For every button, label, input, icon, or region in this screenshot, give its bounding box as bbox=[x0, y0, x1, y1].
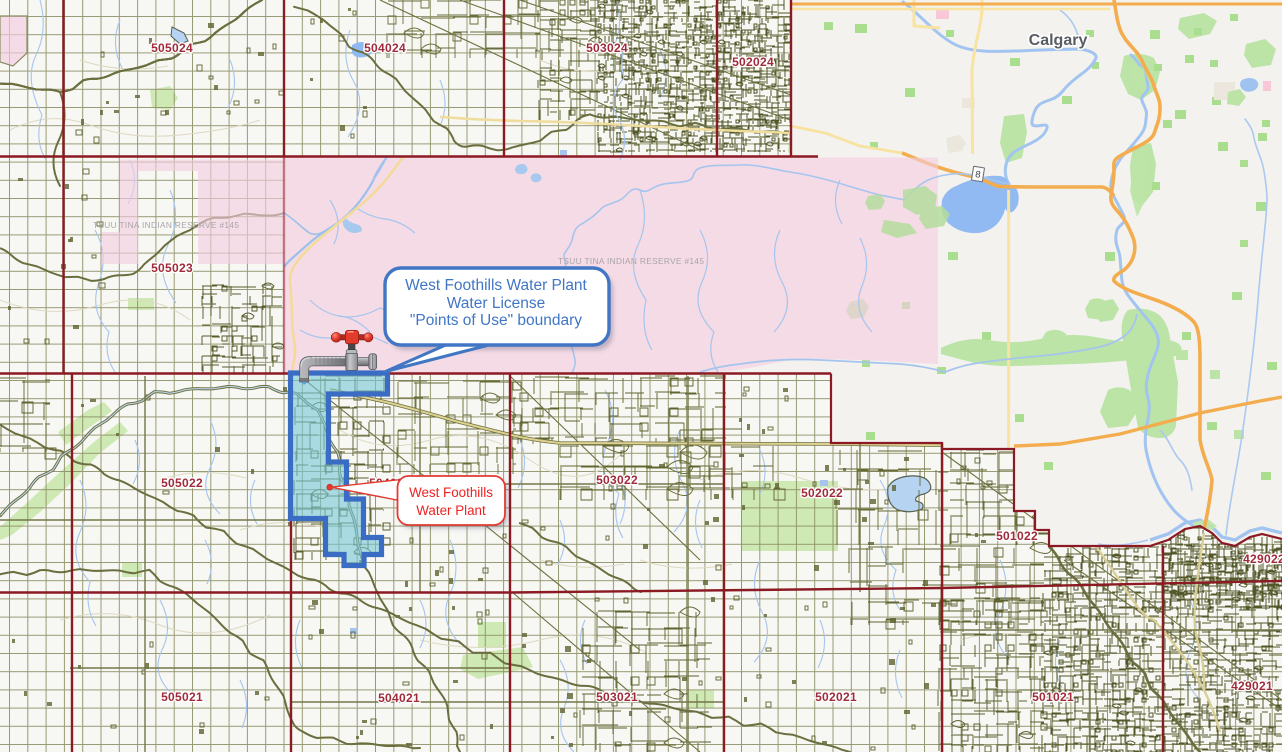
svg-text:429021: 429021 bbox=[1231, 679, 1273, 693]
svg-text:501022: 501022 bbox=[996, 529, 1038, 543]
svg-text:TSUU TINA INDIAN RESERVE #145: TSUU TINA INDIAN RESERVE #145 bbox=[93, 220, 239, 230]
svg-text:TSUU TINA INDIAN RESERVE #145: TSUU TINA INDIAN RESERVE #145 bbox=[558, 256, 704, 266]
svg-text:503021: 503021 bbox=[596, 690, 638, 704]
svg-text:West Foothills: West Foothills bbox=[409, 485, 493, 500]
svg-text:503022: 503022 bbox=[596, 473, 638, 487]
svg-text:505023: 505023 bbox=[151, 261, 193, 275]
svg-text:505021: 505021 bbox=[161, 690, 203, 704]
svg-text:429022: 429022 bbox=[1243, 552, 1282, 566]
svg-text:Water Plant: Water Plant bbox=[416, 503, 486, 518]
svg-text:503024: 503024 bbox=[586, 41, 628, 55]
svg-text:502022: 502022 bbox=[801, 486, 843, 500]
svg-text:Water License: Water License bbox=[447, 295, 546, 312]
svg-text:"Points of Use" boundary: "Points of Use" boundary bbox=[410, 312, 582, 329]
svg-text:West Foothills Water Plant: West Foothills Water Plant bbox=[405, 277, 587, 294]
svg-text:504021: 504021 bbox=[378, 691, 420, 705]
svg-text:504024: 504024 bbox=[364, 41, 406, 55]
svg-text:502024: 502024 bbox=[732, 55, 774, 69]
svg-text:501021: 501021 bbox=[1032, 690, 1074, 704]
svg-text:502021: 502021 bbox=[815, 690, 857, 704]
svg-text:505022: 505022 bbox=[161, 476, 203, 490]
svg-text:505024: 505024 bbox=[151, 41, 193, 55]
svg-text:Calgary: Calgary bbox=[1029, 32, 1088, 49]
